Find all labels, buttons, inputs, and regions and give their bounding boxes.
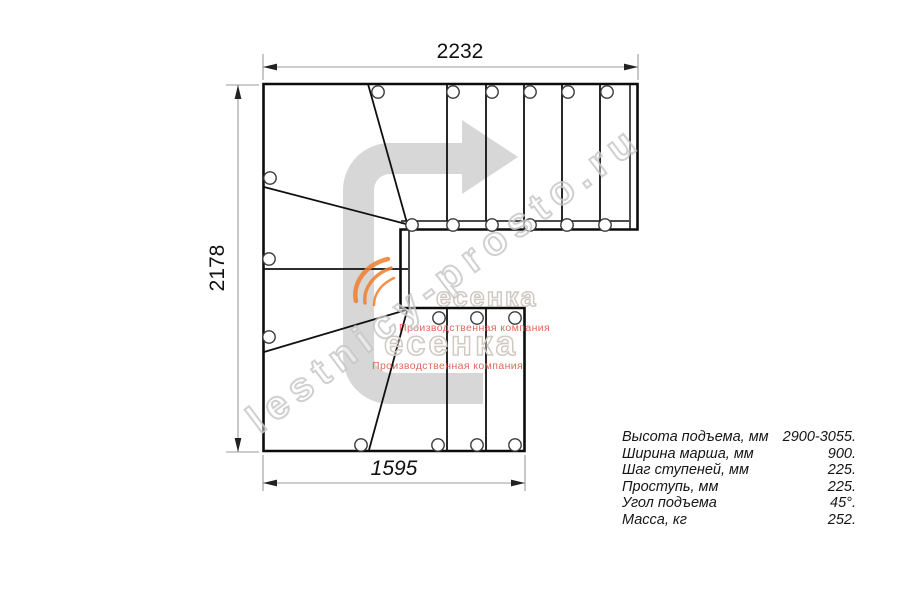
spec-value: 45°. — [830, 495, 856, 512]
dim-arrowhead — [624, 64, 638, 71]
screw-marker — [447, 219, 459, 231]
spec-label: Угол подъема — [622, 495, 830, 512]
screw-marker — [509, 439, 521, 451]
spec-label: Масса, кг — [622, 512, 828, 529]
screw-marker — [471, 439, 483, 451]
winder-line — [264, 187, 406, 224]
screw-marker — [471, 312, 483, 324]
screw-marker — [264, 172, 276, 184]
screw-marker — [372, 86, 384, 98]
dimension-left-value: 2178 — [206, 245, 229, 292]
winder-line — [264, 310, 406, 352]
spec-row: Угол подъема 45°. — [622, 495, 856, 512]
screw-marker — [406, 219, 418, 231]
dimension-bottom: 1595 — [263, 455, 525, 491]
spec-row: Шаг ступеней, мм 225. — [622, 462, 856, 479]
spec-label: Ширина марша, мм — [622, 446, 828, 463]
spec-label: Проступь, мм — [622, 479, 828, 496]
spec-label: Высота подъема, мм — [622, 429, 783, 446]
screw-marker — [486, 219, 498, 231]
specs-table: Высота подъема, мм 2900-3055. Ширина мар… — [622, 429, 856, 529]
spec-value: 225. — [828, 462, 856, 479]
screw-marker — [509, 312, 521, 324]
screw-marker — [486, 86, 498, 98]
swoosh-stroke — [365, 268, 391, 303]
screw-marker — [601, 86, 613, 98]
spec-label: Шаг ступеней, мм — [622, 462, 828, 479]
screw-marker — [432, 439, 444, 451]
spec-row: Высота подъема, мм 2900-3055. — [622, 429, 856, 446]
screw-marker — [524, 86, 536, 98]
stair-drawing-screenshot: 2232 2178 1595 — [0, 0, 900, 600]
screw-marker — [599, 219, 611, 231]
dimension-left: 2178 — [206, 85, 259, 452]
spec-value: 225. — [828, 479, 856, 496]
dim-arrowhead — [263, 480, 277, 487]
spec-row: Масса, кг 252. — [622, 512, 856, 529]
swoosh-stroke — [374, 278, 394, 305]
stringer-edge-lines — [401, 84, 630, 307]
dim-arrowhead — [235, 438, 242, 452]
screw-marker — [433, 312, 445, 324]
spec-row: Ширина марша, мм 900. — [622, 446, 856, 463]
screw-marker — [562, 86, 574, 98]
spec-value: 2900-3055. — [783, 429, 856, 446]
spec-value: 900. — [828, 446, 856, 463]
screw-marker — [524, 219, 536, 231]
screw-marker — [447, 86, 459, 98]
dimension-top: 2232 — [263, 40, 638, 80]
logo-swoosh-icon — [348, 255, 410, 307]
screw-marker — [355, 439, 367, 451]
dimension-bottom-value: 1595 — [371, 457, 418, 480]
spec-value: 252. — [828, 512, 856, 529]
screw-marker — [263, 331, 275, 343]
dim-arrowhead — [511, 480, 525, 487]
screw-marker — [561, 219, 573, 231]
spec-row: Проступь, мм 225. — [622, 479, 856, 496]
dim-arrowhead — [235, 85, 242, 99]
screw-marker — [263, 253, 275, 265]
dim-arrowhead — [263, 64, 277, 71]
dimension-top-value: 2232 — [437, 40, 484, 63]
